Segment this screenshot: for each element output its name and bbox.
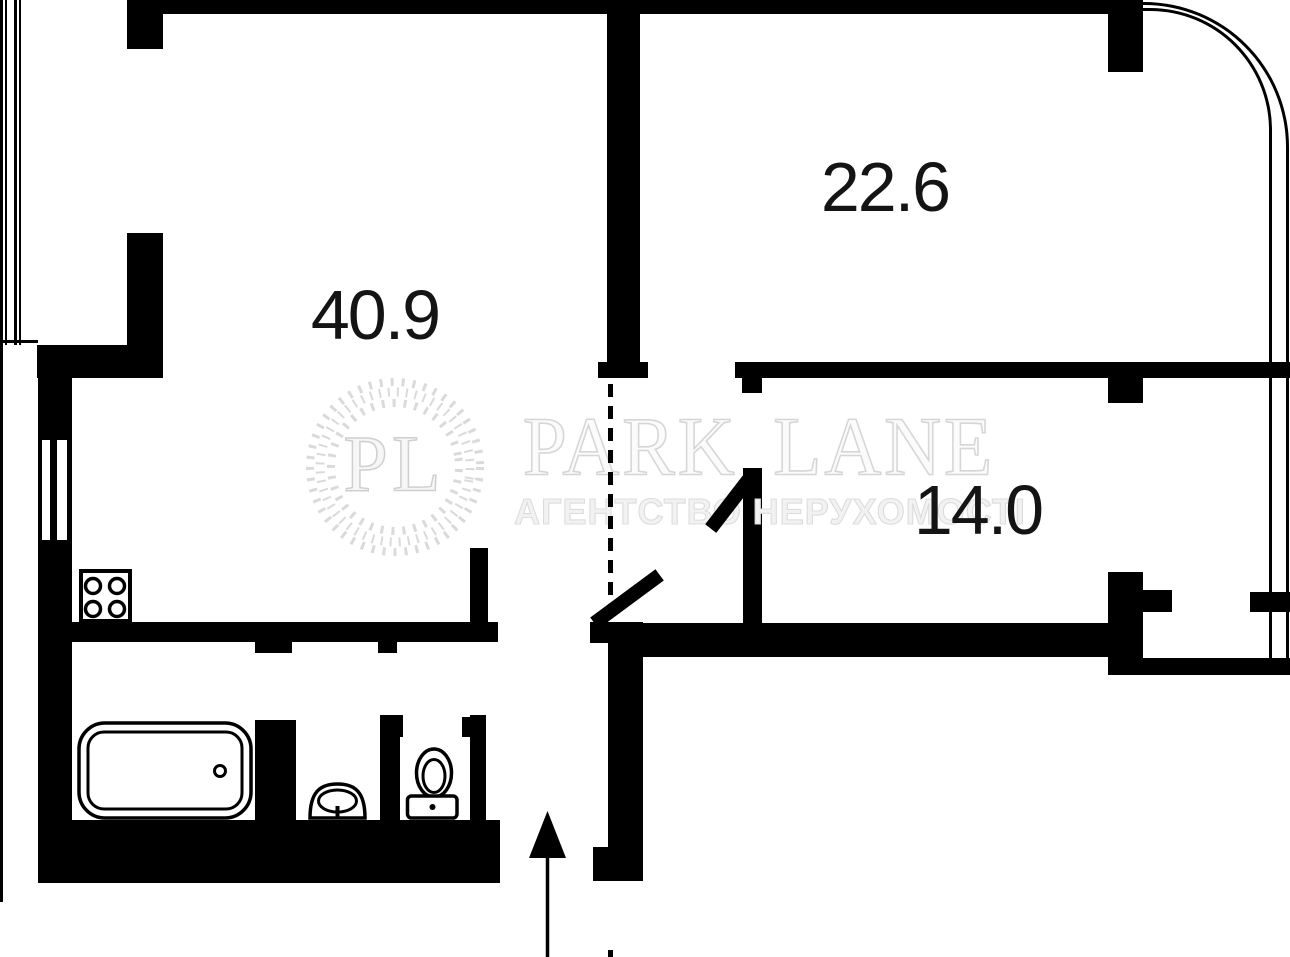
room-area-label-second-room: 14.0 [914,470,1042,550]
room-area-label-living: 40.9 [311,275,439,355]
room-area-label-bedroom: 22.6 [821,147,949,227]
bathtub-icon [79,723,251,818]
sink-icon [310,784,365,818]
entrance-arrow-icon [529,811,566,957]
toilet-icon [408,749,458,818]
stove-icon [81,571,130,621]
door-leaf-icon [715,479,749,523]
floor-plan: PARK LANE АГЕНТСТВО НЕРУХОМОСТІ PL [0,0,1290,957]
